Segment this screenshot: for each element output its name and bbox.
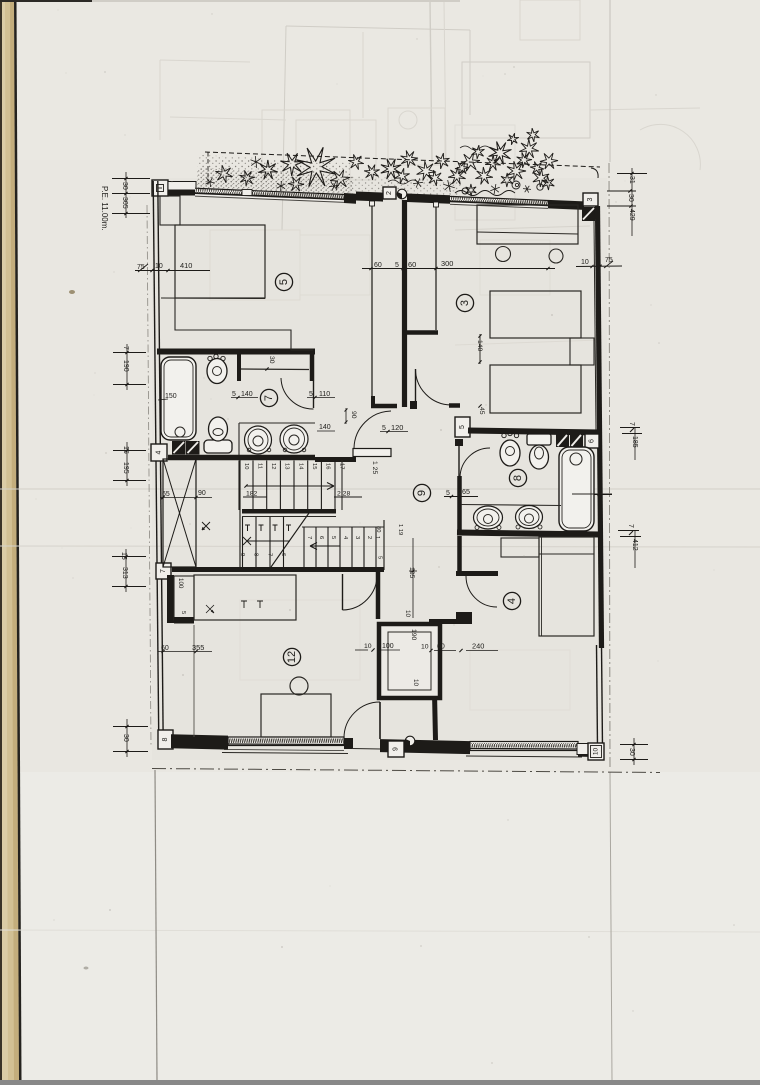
svg-text:9: 9	[393, 747, 400, 751]
svg-text:140: 140	[476, 340, 483, 352]
svg-text:10: 10	[364, 643, 372, 650]
svg-text:140: 140	[319, 424, 331, 431]
svg-text:2: 2	[386, 191, 393, 195]
svg-text:7: 7	[306, 536, 312, 539]
svg-text:3: 3	[587, 197, 594, 201]
svg-text:10: 10	[581, 259, 589, 266]
svg-text:10: 10	[421, 644, 429, 651]
svg-text:5: 5	[278, 279, 290, 285]
svg-text:90: 90	[350, 411, 357, 419]
svg-text:10: 10	[243, 463, 249, 469]
svg-text:8: 8	[512, 475, 524, 481]
svg-text:8: 8	[253, 553, 259, 556]
svg-text:100: 100	[177, 578, 184, 589]
svg-text:190: 190	[122, 360, 129, 372]
svg-text:5: 5	[395, 262, 399, 269]
svg-text:10: 10	[155, 263, 163, 270]
svg-text:30: 30	[121, 182, 128, 190]
svg-text:355: 355	[192, 643, 204, 652]
svg-text:1 19: 1 19	[397, 524, 403, 535]
svg-text:10: 10	[412, 679, 419, 687]
svg-text:4: 4	[506, 598, 518, 604]
svg-text:10: 10	[593, 748, 600, 756]
svg-text:60: 60	[374, 262, 382, 269]
svg-text:14: 14	[297, 463, 303, 470]
svg-text:9: 9	[239, 553, 245, 556]
svg-text:182: 182	[246, 491, 258, 498]
svg-text:30: 30	[628, 748, 635, 756]
svg-text:5: 5	[180, 611, 186, 614]
svg-text:412: 412	[631, 539, 638, 551]
svg-text:313: 313	[121, 567, 128, 579]
svg-text:195: 195	[122, 462, 129, 474]
svg-text:6: 6	[318, 536, 324, 539]
svg-text:31: 31	[628, 176, 635, 184]
svg-text:80: 80	[375, 526, 381, 532]
svg-text:3: 3	[459, 300, 471, 306]
svg-text:7: 7	[160, 569, 167, 573]
svg-text:140: 140	[241, 391, 253, 398]
svg-text:410: 410	[180, 261, 192, 270]
svg-text:110: 110	[319, 391, 330, 398]
svg-text:60: 60	[437, 644, 445, 651]
svg-text:15: 15	[122, 446, 129, 454]
svg-text:60: 60	[161, 645, 169, 652]
svg-text:5: 5	[330, 536, 336, 539]
svg-text:10: 10	[404, 610, 411, 618]
svg-text:300: 300	[441, 259, 453, 268]
svg-text:7: 7	[267, 553, 273, 556]
svg-text:3: 3	[354, 536, 360, 539]
svg-text:7: 7	[263, 395, 275, 401]
svg-text:30: 30	[268, 356, 275, 364]
svg-text:8: 8	[162, 737, 169, 741]
svg-text:265: 265	[458, 487, 470, 496]
svg-text:12: 12	[286, 651, 298, 663]
svg-text:6: 6	[589, 439, 596, 443]
svg-text:1 25: 1 25	[371, 461, 378, 474]
svg-text:120: 120	[391, 423, 403, 432]
svg-text:11: 11	[257, 463, 263, 469]
svg-text:7: 7	[628, 422, 635, 426]
svg-text:2 28: 2 28	[337, 491, 350, 498]
svg-text:30: 30	[627, 194, 634, 202]
svg-text:7: 7	[122, 346, 129, 350]
svg-text:1: 1	[374, 536, 380, 539]
svg-text:15: 15	[311, 463, 317, 469]
svg-text:5: 5	[382, 425, 386, 432]
svg-text:4: 4	[156, 450, 163, 454]
svg-text:13: 13	[284, 463, 290, 469]
svg-text:185: 185	[631, 436, 638, 448]
svg-text:16: 16	[325, 463, 331, 469]
svg-text:45: 45	[478, 407, 485, 415]
svg-text:105: 105	[408, 567, 415, 579]
svg-text:5: 5	[309, 391, 313, 398]
svg-text:240: 240	[472, 642, 484, 651]
svg-text:30: 30	[122, 734, 129, 742]
svg-text:5: 5	[377, 556, 383, 559]
svg-text:305: 305	[121, 197, 128, 209]
svg-text:190: 190	[410, 629, 417, 641]
svg-text:15: 15	[120, 552, 127, 560]
svg-text:5: 5	[446, 490, 450, 497]
svg-text:12: 12	[270, 463, 276, 469]
svg-text:5: 5	[232, 391, 236, 398]
svg-text:17: 17	[338, 463, 344, 469]
svg-text:7: 7	[627, 524, 634, 528]
svg-text:2: 2	[366, 536, 372, 539]
svg-text:90: 90	[198, 490, 206, 497]
svg-text:P.E. 11.00m.: P.E. 11.00m.	[100, 186, 109, 231]
svg-text:60: 60	[408, 260, 416, 269]
svg-text:5: 5	[459, 425, 466, 429]
svg-text:429: 429	[628, 209, 635, 221]
svg-text:100: 100	[382, 643, 394, 650]
svg-text:9: 9	[416, 490, 428, 496]
